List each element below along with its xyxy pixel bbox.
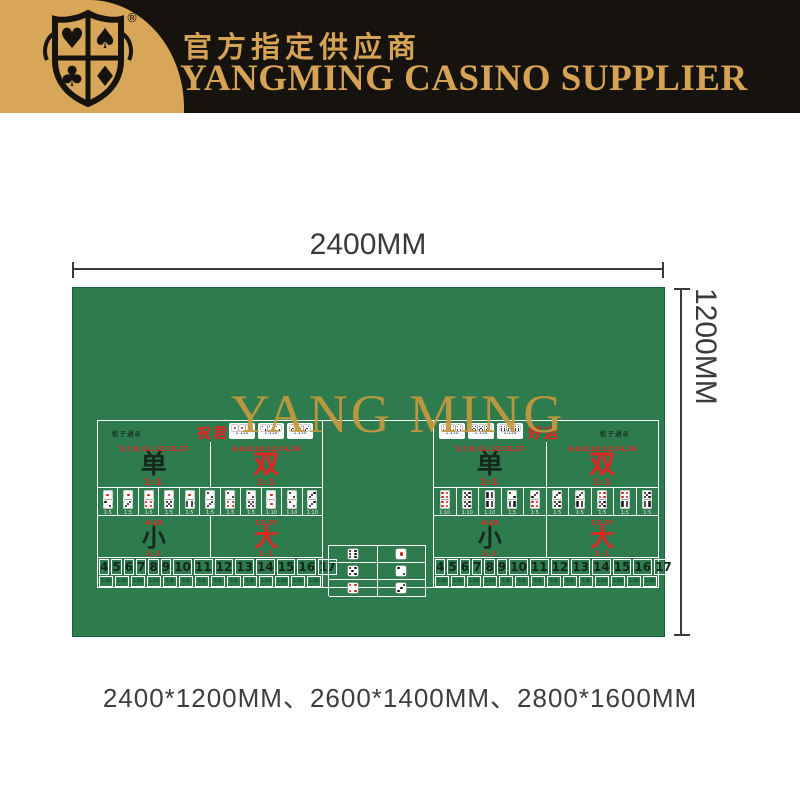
total-bet-cell: 6: [124, 559, 134, 575]
bet-character: 单: [141, 453, 167, 478]
die-pip: [252, 501, 254, 503]
die-pip: [397, 567, 400, 570]
luck-label: 祝君: [197, 423, 229, 443]
die-pip: [289, 492, 291, 494]
two-dice-combo-cell: 1:5: [139, 488, 159, 515]
small-bet-box: 4-10小1-1: [434, 516, 547, 557]
die-pip: [603, 496, 605, 498]
die-pip: [446, 505, 448, 507]
die-6: [576, 500, 584, 508]
die-4: [226, 500, 234, 508]
small-big-row: 4-10小1-111-17大1-1: [98, 515, 322, 557]
die-3: [206, 500, 214, 508]
die-pip: [397, 590, 400, 593]
total-bet-cell: 10: [509, 559, 528, 575]
die-pip: [227, 492, 229, 494]
total-bet-cell: 11: [530, 559, 549, 575]
bet-character: 双: [589, 453, 615, 478]
die-5: [463, 500, 471, 508]
total-bet-cell: 17: [654, 559, 673, 575]
total-odds-cell: 1:6: [195, 576, 209, 587]
die-pip: [311, 494, 313, 496]
totals-odds-row: 1:501:251:181:121:81:61:61:61:61:81:121:…: [98, 576, 322, 587]
combo-dice-box: [620, 490, 630, 509]
two-dice-combo-cell: 1:5: [524, 488, 547, 515]
die-pip: [603, 501, 605, 503]
die-pip: [556, 494, 558, 496]
two-dice-combo-cell: 1:5: [200, 488, 220, 515]
single-die-grid-row: [329, 546, 426, 563]
die-4: [621, 491, 629, 499]
brand-watermark: YANG MING: [231, 383, 566, 445]
die-pip: [354, 573, 357, 576]
die-pip: [648, 496, 650, 498]
die-pip: [311, 503, 313, 505]
die-pip: [354, 584, 357, 587]
single-die-cell: [378, 580, 427, 597]
total-bet-cell: 5: [111, 559, 121, 575]
die-2: [508, 491, 516, 499]
die-6: [186, 500, 194, 508]
total-odds-cell: 1:50: [99, 576, 113, 587]
spade-icon: ♠: [92, 22, 117, 55]
die-pip: [232, 496, 234, 498]
total-odds-cell: 1:6: [227, 576, 241, 587]
bet-character: 小: [478, 527, 502, 550]
die-pip: [354, 567, 357, 570]
total-bet-cell: 13: [571, 559, 590, 575]
right-flourish: [123, 34, 131, 60]
layout-half-left: 骰子通杀祝君1:1501:1501:1505,7,9,11,13,15,17单1…: [98, 421, 322, 587]
header-title-en: YANGMING CASINO SUPPLIER: [180, 57, 748, 100]
pair-combo-row: 1:101:101:101:51:51:51:51:51:51:5: [434, 487, 658, 515]
die-pip: [207, 505, 209, 507]
single-die-cell: [378, 546, 427, 563]
registered-trademark-icon: ®: [126, 11, 138, 25]
total-odds-cell: 1:6: [515, 576, 529, 587]
die-5: [463, 491, 471, 499]
total-bet-cell: 9: [161, 559, 171, 575]
two-dice-combo-cell: 1:5: [98, 488, 118, 515]
total-bet-cell: 8: [484, 559, 494, 575]
total-bet-cell: 15: [613, 559, 632, 575]
total-odds-cell: 1:18: [275, 576, 289, 587]
die-4: [598, 491, 606, 499]
die-pip: [349, 553, 352, 556]
combo-dice-box: [144, 490, 154, 509]
die-5: [553, 500, 561, 508]
die-pip: [351, 570, 354, 573]
die-pip: [626, 492, 628, 494]
die-pip: [127, 503, 129, 505]
die-1: [186, 491, 194, 499]
die-pip: [354, 590, 357, 593]
die-pip: [534, 494, 536, 496]
total-bet-cell: 4: [99, 559, 109, 575]
total-odds-cell: 1:6: [531, 576, 545, 587]
die-2: [247, 491, 255, 499]
die-pip: [248, 505, 250, 507]
total-bet-cell: 10: [173, 559, 192, 575]
totals-row: 4567891011121314151617: [434, 557, 658, 576]
die-2: [396, 566, 406, 576]
die-pip: [186, 505, 188, 507]
die-pip: [125, 505, 127, 507]
diamond-icon: ♦: [92, 60, 117, 93]
total-odds-cell: 1:18: [467, 576, 481, 587]
die-5: [247, 500, 255, 508]
bet-character: 小: [142, 527, 166, 550]
combo-dice-box: [246, 490, 256, 509]
die-1: [104, 491, 112, 499]
die-6: [486, 491, 494, 499]
die-pip: [293, 496, 295, 498]
two-dice-combo-cell: 1:5: [614, 488, 637, 515]
die-pip: [603, 505, 605, 507]
die-pip: [468, 501, 470, 503]
die-pip: [626, 496, 628, 498]
bet-character: 单: [477, 453, 503, 478]
combo-dice-box: [266, 490, 276, 509]
height-dimension-line: [680, 288, 682, 636]
die-3: [553, 491, 561, 499]
die-pip: [581, 492, 583, 494]
die-pip: [170, 505, 172, 507]
two-dice-combo-cell: 1:5: [118, 488, 138, 515]
die-6: [486, 500, 494, 508]
combo-dice-box: [552, 490, 562, 509]
two-dice-combo-cell: 1:5: [569, 488, 592, 515]
die-pip: [349, 573, 352, 576]
die-pip: [581, 505, 583, 507]
die-pip: [129, 501, 131, 503]
total-odds-cell: 1:6: [563, 576, 577, 587]
two-dice-combo-cell: 1:5: [502, 488, 525, 515]
die-pip: [191, 505, 193, 507]
die-5: [348, 566, 358, 576]
total-odds-cell: 1:18: [131, 576, 145, 587]
die-pip: [491, 496, 493, 498]
combo-dice-box: [185, 490, 195, 509]
die-3: [308, 491, 316, 499]
center-column: [322, 421, 434, 587]
die-pip: [446, 501, 448, 503]
total-bet-cell: 4: [435, 559, 445, 575]
die-pip: [599, 505, 601, 507]
total-bet-cell: 7: [472, 559, 482, 575]
die-4: [441, 500, 449, 508]
die-pip: [209, 503, 211, 505]
die-pip: [464, 505, 466, 507]
die-pip: [536, 505, 538, 507]
die-1: [145, 491, 153, 499]
available-sizes-caption: 2400*1200MM、2600*1400MM、2800*1600MM: [0, 678, 800, 715]
die-pip: [468, 496, 470, 498]
combo-dice-box: [530, 490, 540, 509]
total-bet-cell: 14: [256, 559, 275, 575]
total-odds-cell: 1:6: [211, 576, 225, 587]
die-5: [643, 491, 651, 499]
die-pip: [468, 492, 470, 494]
die-4: [531, 500, 539, 508]
combo-dice-box: [103, 490, 113, 509]
die-pip: [168, 494, 171, 497]
total-bet-cell: 12: [215, 559, 234, 575]
combo-dice-box: [440, 490, 450, 509]
two-dice-combo-cell: 1:10: [262, 488, 282, 515]
die-pip: [207, 492, 209, 494]
die-pip: [289, 501, 291, 503]
totals-row: 4567891011121314151617: [98, 557, 322, 576]
die-pip: [531, 496, 533, 498]
odd-bet-box: 5,7,9,11,13,15,17单1:1: [98, 442, 211, 487]
total-bet-cell: 13: [235, 559, 254, 575]
two-dice-combo-cell: 1:10: [479, 488, 502, 515]
die-pip: [486, 505, 488, 507]
total-bet-cell: 12: [551, 559, 570, 575]
die-pip: [106, 494, 109, 497]
die-pip: [644, 496, 646, 498]
combo-dice-box: [462, 490, 472, 509]
combo-dice-box: [123, 490, 133, 509]
small-big-row: 4-10小1-111-17大1-1: [434, 515, 658, 557]
die-pip: [349, 556, 352, 559]
die-pip: [211, 501, 213, 503]
die-pip: [513, 505, 515, 507]
combo-dice-box: [642, 490, 652, 509]
die-pip: [554, 496, 556, 498]
total-odds-cell: 1:6: [179, 576, 193, 587]
die-pip: [441, 492, 443, 494]
bet-character: 双: [253, 453, 279, 478]
die-pip: [576, 505, 578, 507]
even-bet-box: 4,6,8,10,12,14,16双1:1: [211, 442, 323, 487]
die-6: [348, 549, 358, 559]
club-icon: ♣: [59, 60, 84, 93]
die-4: [348, 583, 358, 593]
total-bet-cell: 8: [148, 559, 158, 575]
die-pip: [554, 505, 556, 507]
die-pip: [313, 501, 315, 503]
die-pip: [621, 496, 623, 498]
die-pip: [145, 501, 147, 503]
single-die-cell: [378, 563, 427, 580]
die-pip: [349, 590, 352, 593]
die-pip: [313, 492, 315, 494]
total-bet-cell: 11: [194, 559, 213, 575]
die-pip: [621, 492, 623, 494]
die-pip: [252, 505, 254, 507]
combo-dice-box: [164, 490, 174, 509]
die-pip: [188, 494, 191, 497]
odd-even-row: 5,7,9,11,13,15,17单1:14,6,8,10,12,14,16双1…: [434, 442, 658, 487]
total-odds-cell: 1:12: [483, 576, 497, 587]
die-pip: [464, 496, 466, 498]
total-bet-cell: 14: [592, 559, 611, 575]
die-pip: [648, 492, 650, 494]
die-pip: [531, 501, 533, 503]
die-pip: [400, 552, 403, 555]
die-pip: [599, 496, 601, 498]
combo-dice-box: [485, 490, 495, 509]
die-pip: [147, 494, 150, 497]
die-pip: [309, 505, 311, 507]
die-6: [643, 500, 651, 508]
two-dice-combo-cell: 1:5: [547, 488, 570, 515]
die-4: [441, 491, 449, 499]
total-bet-cell: 15: [277, 559, 296, 575]
die-2: [206, 491, 214, 499]
two-dice-combo-cell: 1:10: [457, 488, 480, 515]
die-pip: [441, 505, 443, 507]
die-pip: [166, 505, 168, 507]
die-pip: [232, 501, 234, 503]
total-odds-cell: 1:25: [291, 576, 305, 587]
total-odds-cell: 1:18: [611, 576, 625, 587]
total-odds-cell: 1:8: [499, 576, 513, 587]
combo-dice-box: [205, 490, 215, 509]
die-5: [165, 500, 173, 508]
die-pip: [227, 501, 229, 503]
total-odds-cell: 1:8: [579, 576, 593, 587]
total-bet-cell: 6: [460, 559, 470, 575]
die-pip: [468, 505, 470, 507]
total-odds-cell: 1:50: [307, 576, 321, 587]
die-pip: [248, 492, 250, 494]
die-pip: [509, 505, 511, 507]
combo-dice-box: [597, 490, 607, 509]
die-pip: [491, 505, 493, 507]
die-pip: [104, 501, 106, 503]
die-pip: [232, 505, 234, 507]
width-dimension-line: [72, 268, 664, 270]
die-pip: [599, 492, 601, 494]
betting-layout: 骰子通杀祝君1:1501:1501:1505,7,9,11,13,15,17单1…: [97, 420, 659, 588]
small-bet-box: 4-10小1-1: [98, 516, 211, 557]
two-dice-combo-cell: 1:5: [180, 488, 200, 515]
combo-dice-box: [307, 490, 317, 509]
total-odds-cell: 1:8: [243, 576, 257, 587]
even-bet-box: 4,6,8,10,12,14,16双1:1: [547, 442, 659, 487]
two-dice-combo-cell: 1:5: [221, 488, 241, 515]
die-pip: [441, 501, 443, 503]
total-bet-cell: 9: [497, 559, 507, 575]
odd-even-row: 5,7,9,11,13,15,17单1:14,6,8,10,12,14,16双1…: [98, 442, 322, 487]
die-1: [396, 549, 406, 559]
single-die-cell: [329, 546, 378, 563]
die-pip: [626, 505, 628, 507]
die-pip: [558, 505, 560, 507]
die-pip: [270, 503, 273, 506]
die-pip: [558, 501, 560, 503]
bet-character: 大: [254, 527, 278, 550]
single-die-cell: [329, 563, 378, 580]
total-odds-cell: 1:50: [643, 576, 657, 587]
width-dimension-label: 2400MM: [72, 228, 664, 262]
left-flourish: [45, 34, 53, 60]
two-dice-combo-cell: 1:10: [303, 488, 322, 515]
die-pip: [621, 505, 623, 507]
layout-half-right: 骰子通杀好运1:1501:1501:1505,7,9,11,13,15,17单1…: [434, 421, 658, 587]
two-dice-combo-cell: 1:5: [159, 488, 179, 515]
die-1: [165, 491, 173, 499]
two-dice-combo-cell: 1:10: [434, 488, 457, 515]
total-odds-cell: 1:8: [163, 576, 177, 587]
die-pip: [441, 496, 443, 498]
combo-dice-box: [507, 490, 517, 509]
big-bet-box: 11-17大1-1: [547, 516, 659, 557]
total-odds-cell: 1:12: [259, 576, 273, 587]
total-odds-cell: 1:50: [435, 576, 449, 587]
single-die-grid-row: [329, 563, 426, 580]
die-pip: [513, 496, 515, 498]
die-3: [531, 491, 539, 499]
die-2: [288, 491, 296, 499]
single-die-grid: [328, 545, 426, 596]
bet-character: 大: [590, 527, 614, 550]
die-pip: [270, 494, 273, 497]
total-bet-cell: 16: [297, 559, 316, 575]
die-pip: [403, 584, 406, 587]
total-odds-cell: 1:25: [115, 576, 129, 587]
single-die-grid-row: [329, 580, 426, 597]
sic-bo-table-felt: 骰子通杀祝君1:1501:1501:1505,7,9,11,13,15,17单1…: [72, 287, 665, 637]
die-1: [267, 491, 275, 499]
two-dice-combo-cell: 1:5: [592, 488, 615, 515]
total-odds-cell: 1:25: [451, 576, 465, 587]
two-dice-combo-cell: 1:5: [637, 488, 659, 515]
die-2: [226, 491, 234, 499]
die-1: [124, 491, 132, 499]
odd-bet-box: 5,7,9,11,13,15,17单1:1: [434, 442, 547, 487]
die-pip: [558, 492, 560, 494]
two-dice-combo-cell: 1:10: [282, 488, 302, 515]
die-pip: [309, 496, 311, 498]
die-pip: [227, 505, 229, 507]
die-1: [267, 500, 275, 508]
die-pip: [536, 501, 538, 503]
die-pip: [150, 505, 152, 507]
combo-dice-box: [287, 490, 297, 509]
die-6: [621, 500, 629, 508]
combo-dice-box: [225, 490, 235, 509]
height-dimension-label: 1200MM: [688, 288, 722, 636]
die-3: [308, 500, 316, 508]
brand-header: ♥ ♠ ♣ ♦ ® 官方指定供应商 YANGMING CASINO SUPPLI…: [0, 0, 800, 113]
die-pip: [531, 505, 533, 507]
die-pip: [293, 505, 295, 507]
corner-note: 骰子通杀: [112, 428, 142, 438]
die-2: [288, 500, 296, 508]
total-odds-cell: 1:12: [147, 576, 161, 587]
die-2: [104, 500, 112, 508]
heart-icon: ♥: [59, 22, 84, 55]
die-pip: [486, 496, 488, 498]
die-3: [396, 583, 406, 593]
die-pip: [150, 501, 152, 503]
die-4: [145, 500, 153, 508]
single-die-cell: [329, 580, 378, 597]
die-pip: [354, 553, 357, 556]
product-page: ♥ ♠ ♣ ♦ ® 官方指定供应商 YANGMING CASINO SUPPLI…: [0, 0, 800, 800]
die-5: [598, 500, 606, 508]
totals-odds-row: 1:501:251:181:121:81:61:61:61:61:81:121:…: [434, 576, 658, 587]
die-pip: [403, 573, 406, 576]
die-pip: [400, 587, 403, 590]
die-pip: [579, 494, 581, 496]
two-dice-combo-cell: 1:5: [241, 488, 261, 515]
die-3: [576, 491, 584, 499]
